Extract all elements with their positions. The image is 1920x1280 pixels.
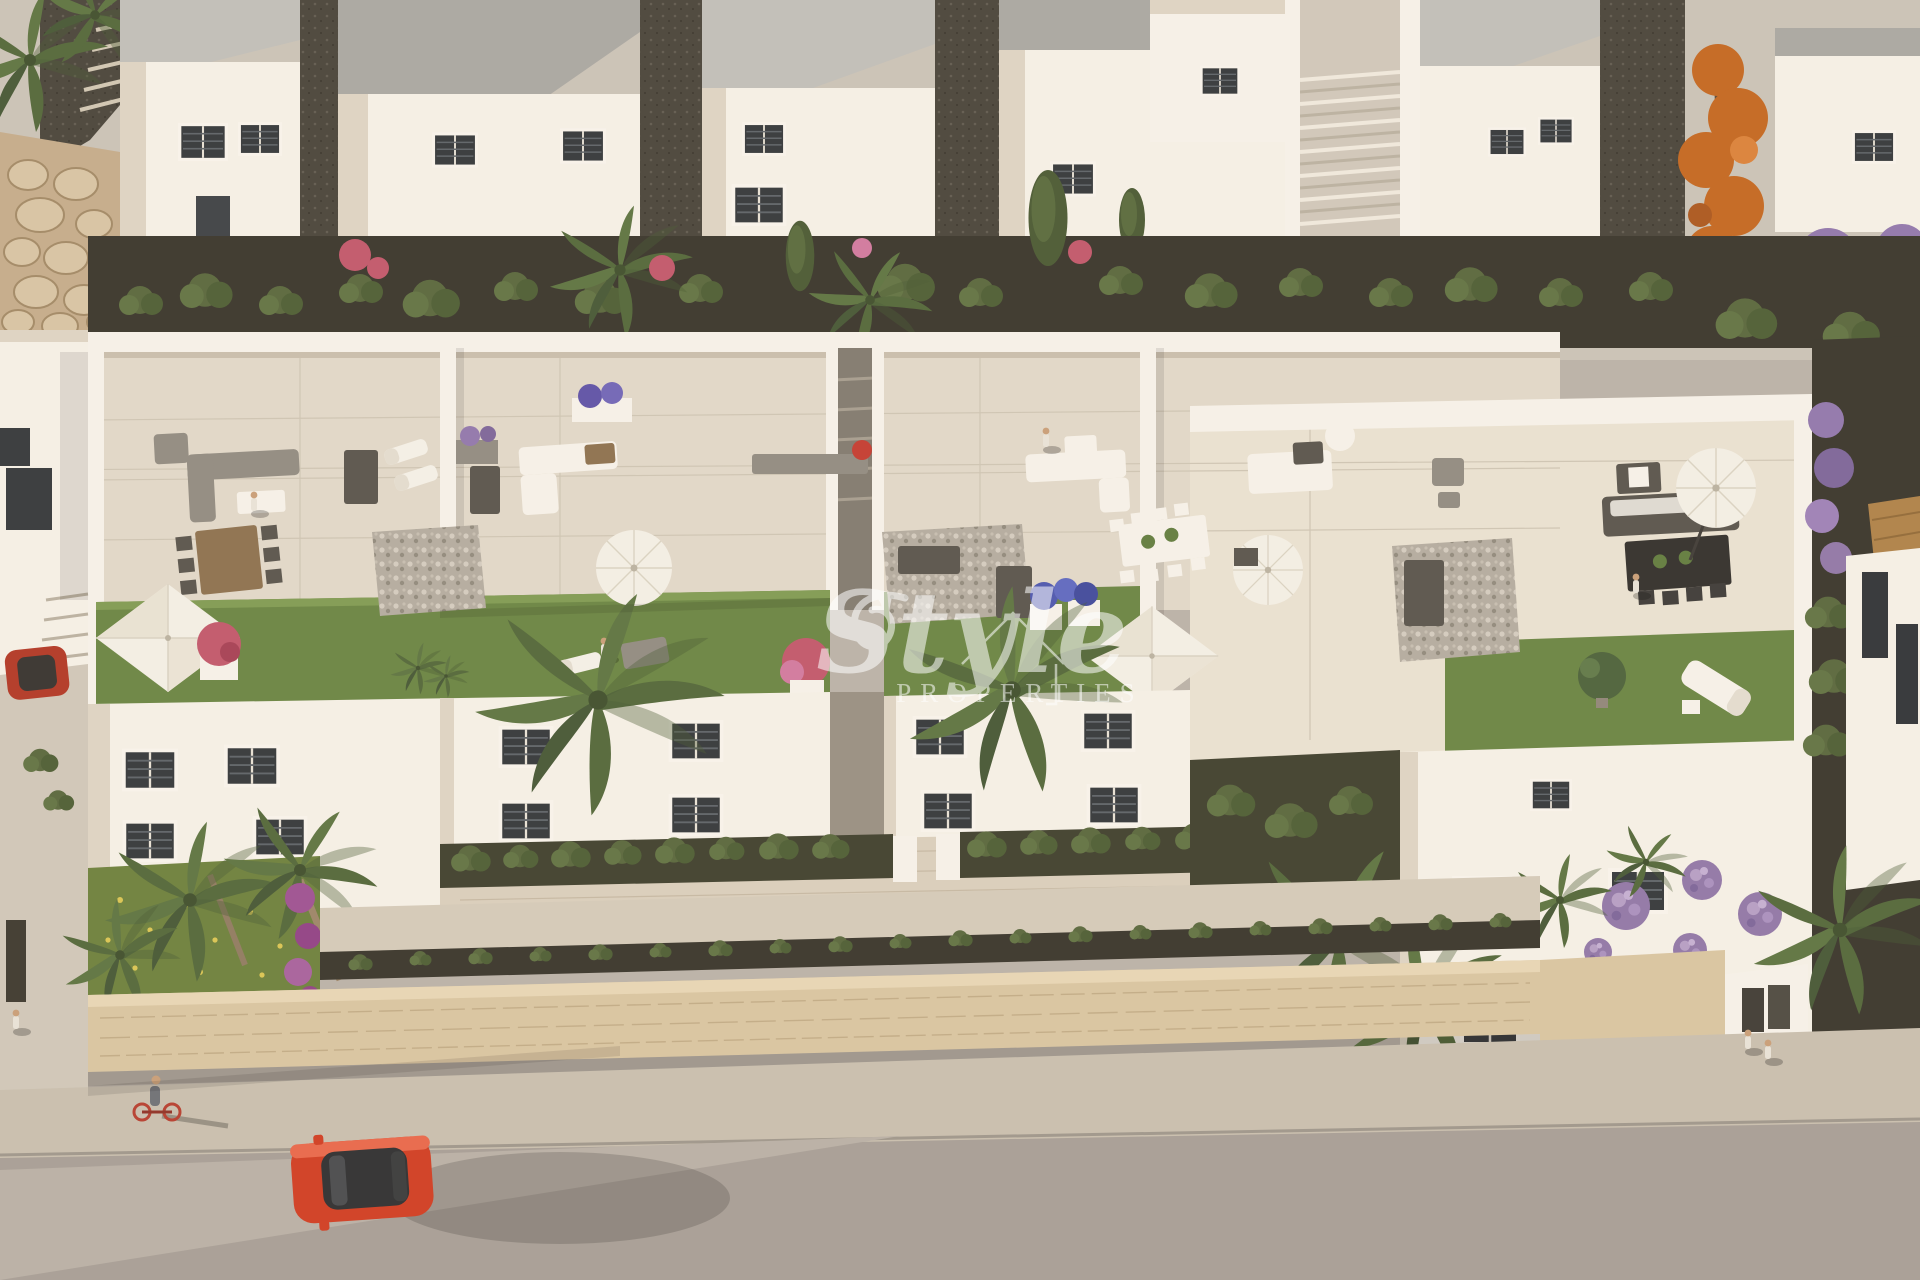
watermark-caps-text: PROPERTIES xyxy=(896,678,1143,708)
scene-canvas: Style PROPERTIES xyxy=(0,0,1920,1280)
brand-watermark: Style PROPERTIES xyxy=(816,568,1143,708)
aerial-render-townhouse-development: Style PROPERTIES xyxy=(0,0,1920,1280)
